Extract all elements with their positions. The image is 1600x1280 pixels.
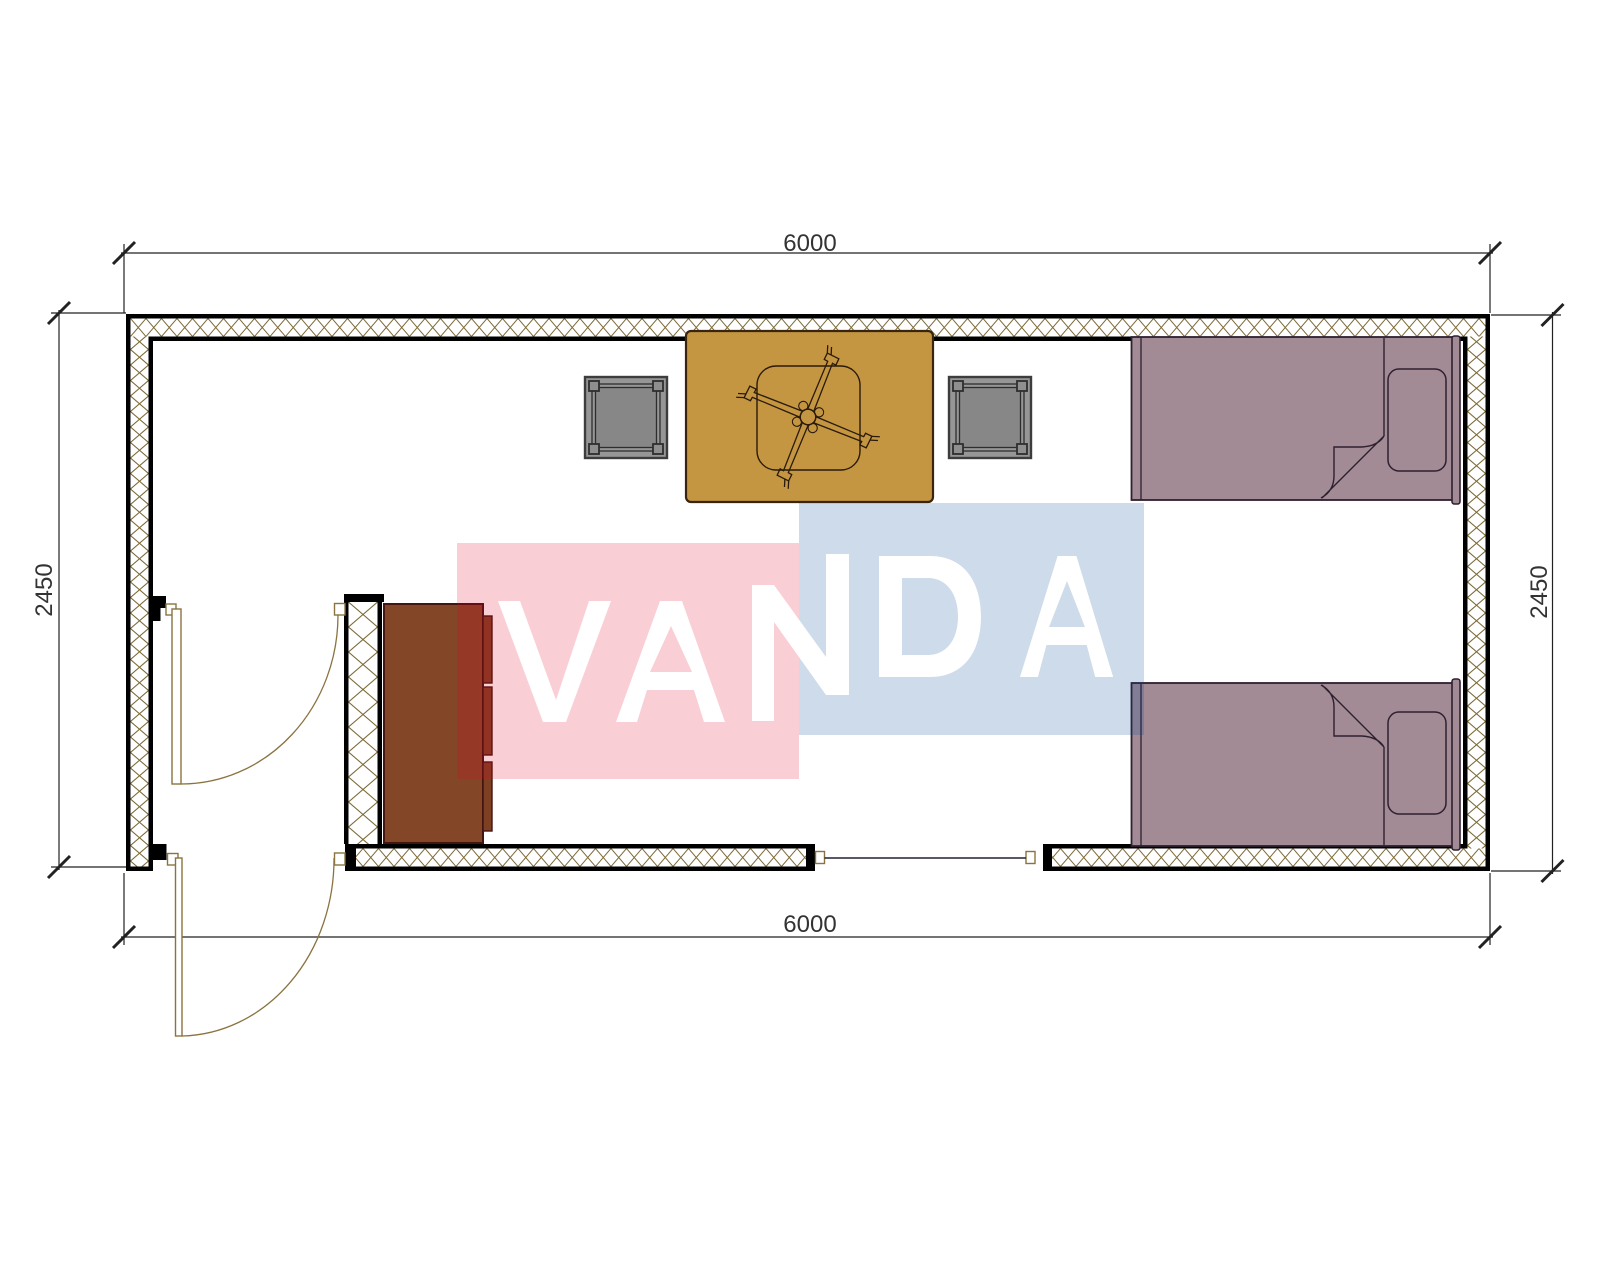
svg-text:2450: 2450 bbox=[31, 563, 58, 616]
svg-text:2450: 2450 bbox=[1526, 565, 1553, 618]
svg-text:6000: 6000 bbox=[783, 230, 836, 257]
svg-text:6000: 6000 bbox=[783, 911, 836, 938]
